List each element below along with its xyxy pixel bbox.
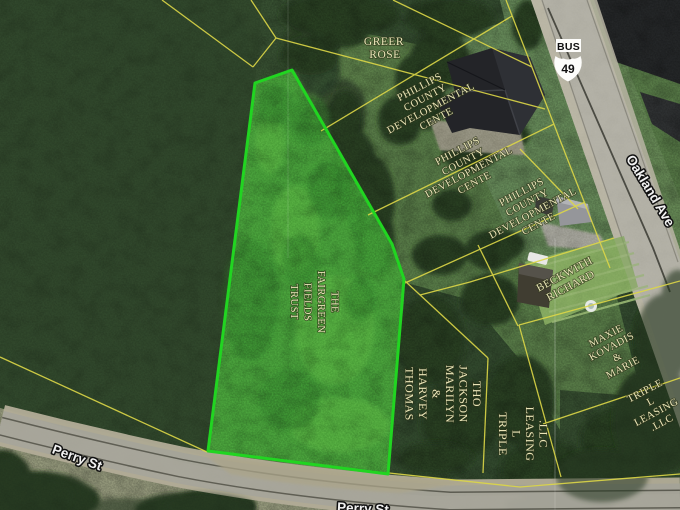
svg-text:49: 49 bbox=[561, 62, 575, 76]
svg-text:BUS: BUS bbox=[557, 41, 580, 53]
svg-text:Perry St: Perry St bbox=[337, 500, 390, 510]
svg-text:GREERROSE: GREERROSE bbox=[364, 36, 404, 61]
